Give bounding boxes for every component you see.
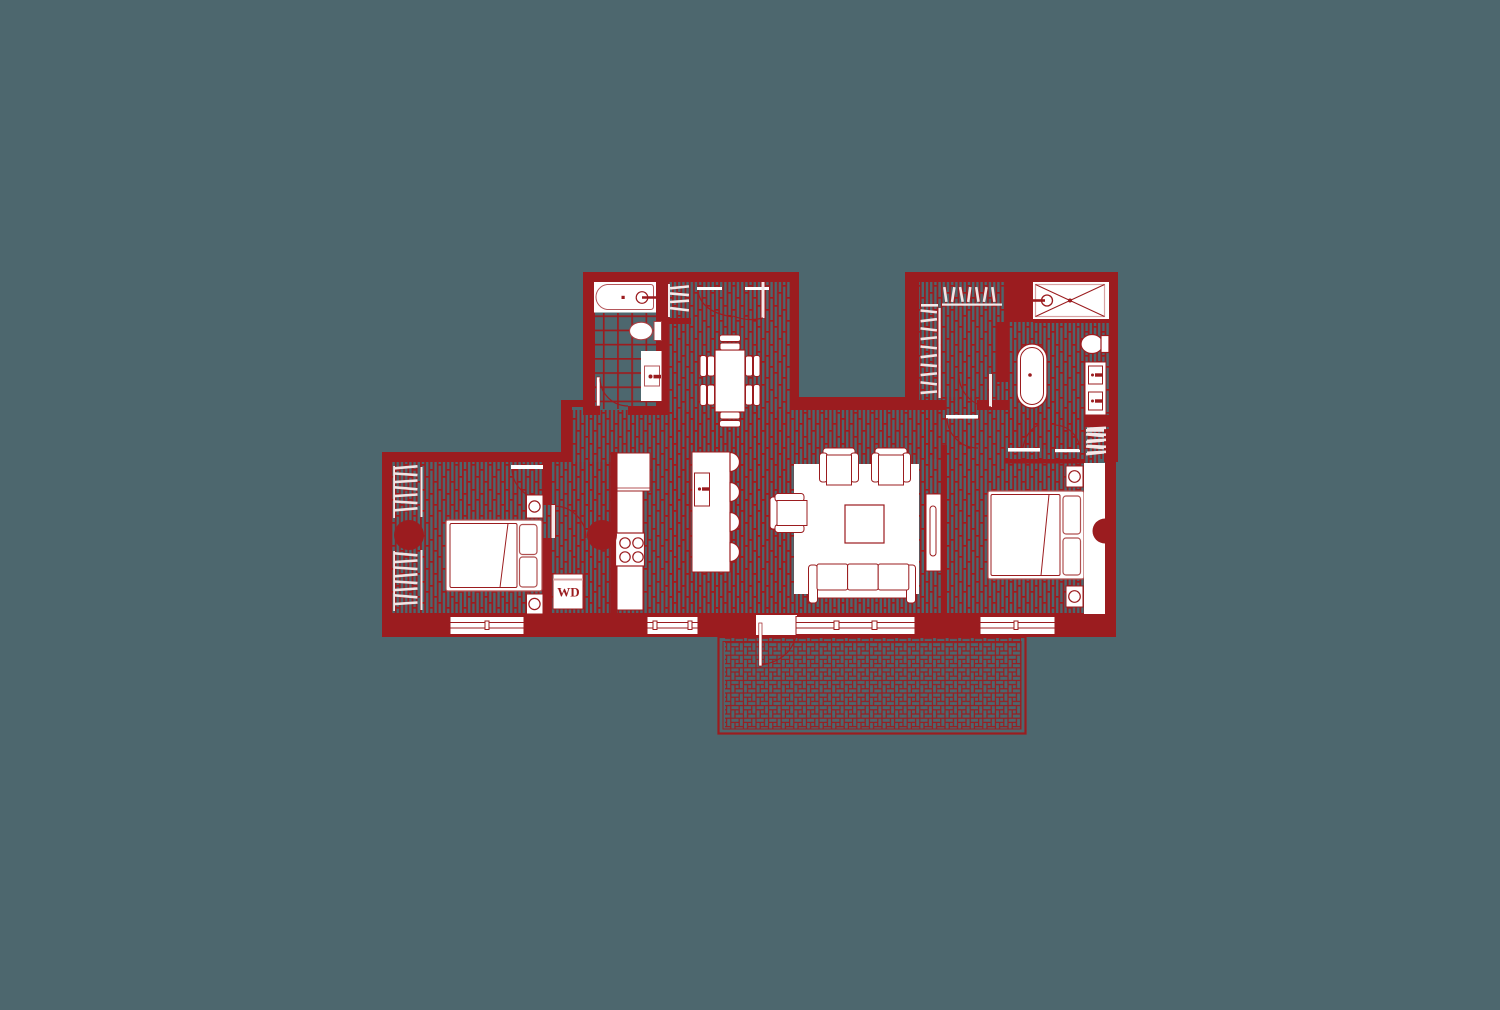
svg-text:WD: WD: [557, 585, 579, 600]
